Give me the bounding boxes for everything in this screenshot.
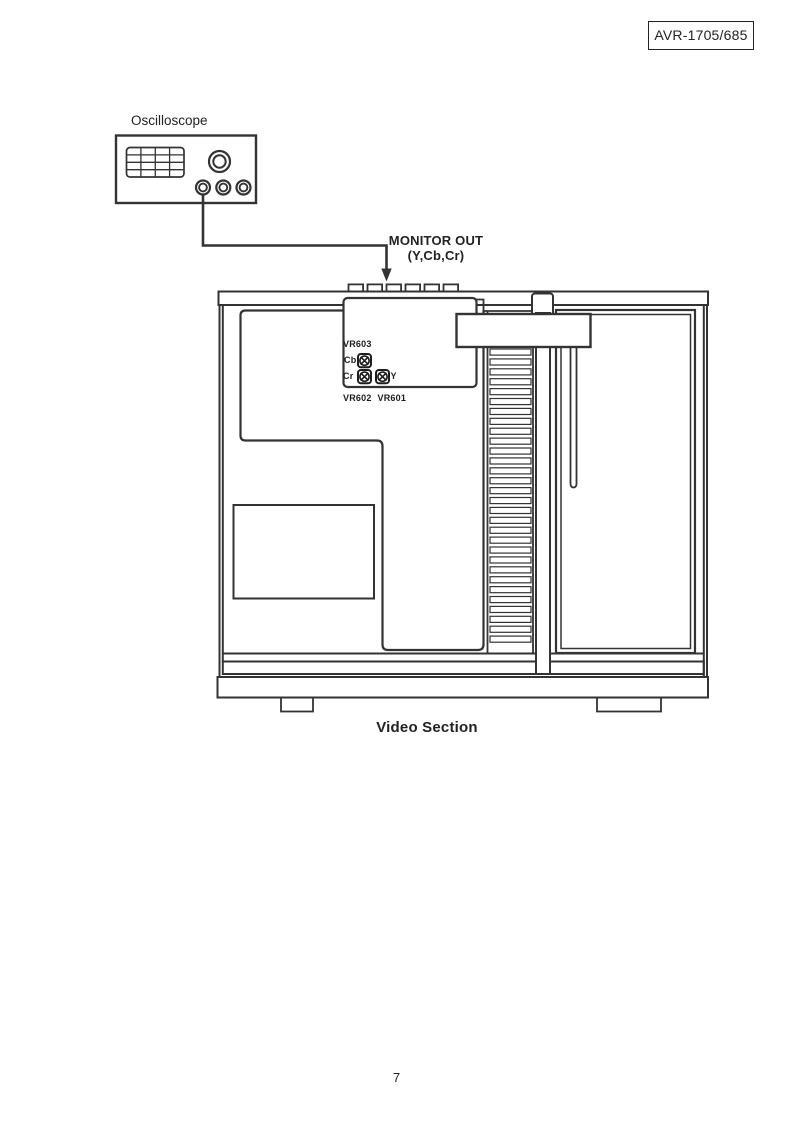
arrow-down-icon — [381, 269, 391, 282]
label-vr601: VR601 — [378, 393, 407, 403]
label-cb: Cb — [344, 355, 356, 365]
label-cr: Cr — [343, 371, 353, 381]
monitor-out-title: MONITOR OUT — [356, 234, 516, 249]
chassis-right-wall — [704, 305, 707, 677]
oscilloscope-label: Oscilloscope — [131, 113, 208, 128]
support-rail — [536, 313, 550, 674]
transformer-block — [234, 505, 375, 599]
heatsink-fins — [490, 349, 531, 642]
page-number: 7 — [0, 1070, 793, 1085]
foot-right — [597, 698, 661, 712]
hanging-rod — [571, 344, 577, 488]
oscilloscope-knob-icon — [209, 151, 230, 172]
manual-page: AVR-1705/685 Oscilloscope MONITOR OUT (Y… — [0, 0, 793, 1122]
label-vr602: VR602 — [343, 393, 372, 403]
oscilloscope-drawing — [116, 136, 256, 204]
model-number-box: AVR-1705/685 — [648, 21, 754, 50]
section-caption: Video Section — [327, 719, 527, 736]
foot-left — [281, 698, 313, 712]
oscilloscope-screen-icon — [127, 148, 185, 178]
heatsink — [488, 311, 534, 654]
front-panel — [218, 677, 709, 698]
label-vr603: VR603 — [343, 339, 372, 349]
monitor-out-signals: (Y,Cb,Cr) — [356, 249, 516, 264]
monitor-out-label: MONITOR OUT (Y,Cb,Cr) — [356, 234, 516, 263]
crossbar-bracket — [457, 314, 591, 347]
label-y: Y — [391, 371, 397, 381]
label-vr602-vr601: VR602 VR601 — [343, 393, 406, 403]
video-section-diagram — [0, 0, 793, 1122]
inner-bottom-bar — [223, 662, 704, 675]
bnc-connector-icons — [196, 181, 251, 195]
chassis-left-wall — [220, 305, 223, 677]
